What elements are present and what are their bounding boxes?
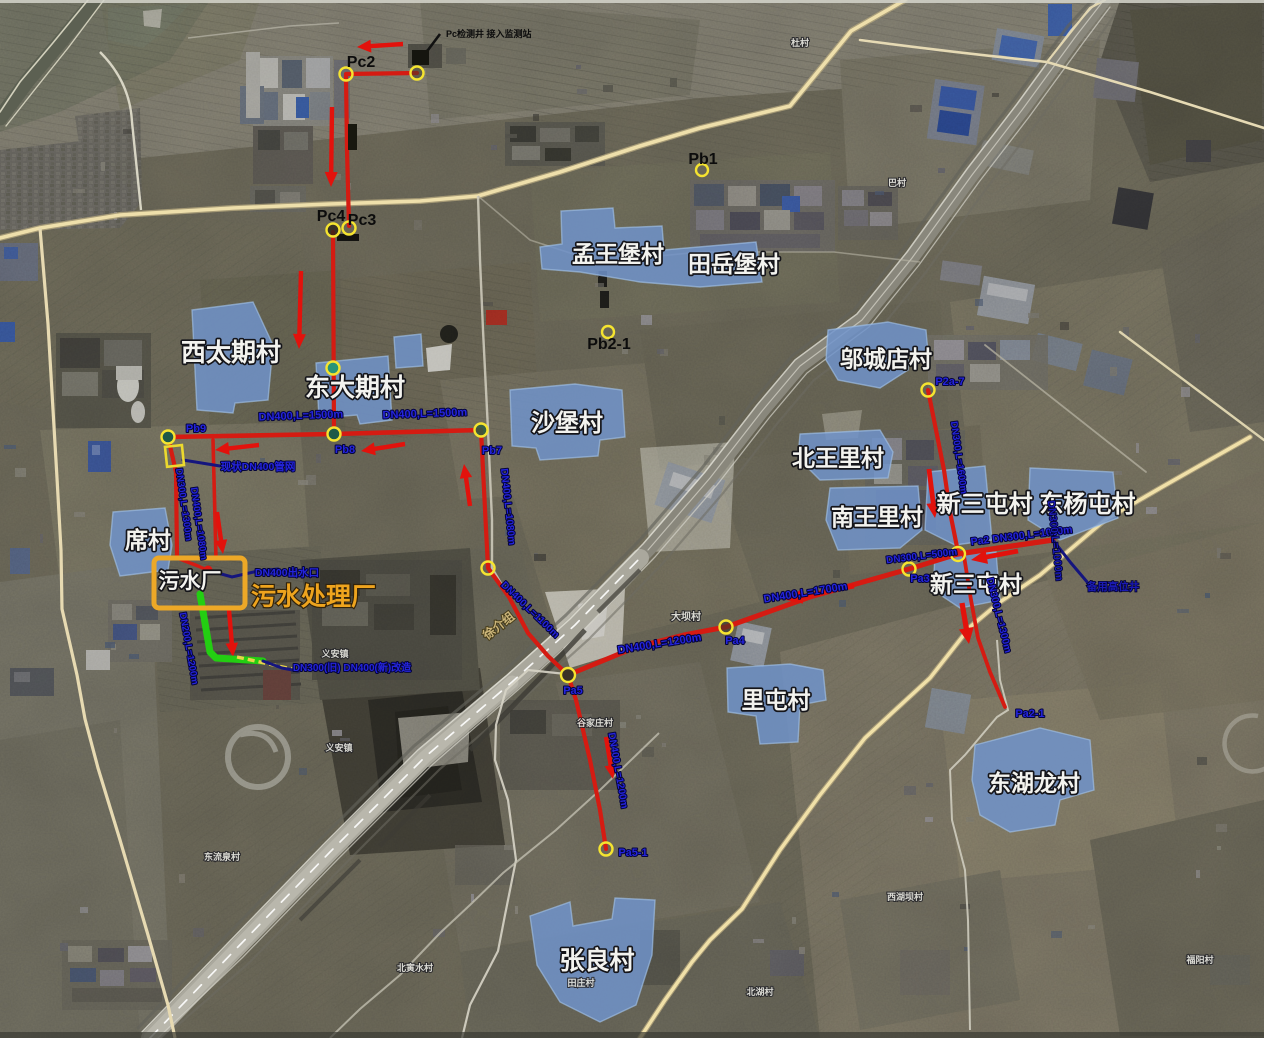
svg-text:Pb7: Pb7 (482, 445, 502, 457)
svg-text:备用高位井: 备用高位井 (1086, 580, 1140, 593)
svg-text:田庄村: 田庄村 (567, 977, 594, 988)
svg-text:西太期村: 西太期村 (181, 339, 281, 367)
svg-text:里屯村: 里屯村 (742, 687, 811, 713)
svg-text:福阳村: 福阳村 (1185, 954, 1213, 965)
svg-text:Pc检测井 接入监测站: Pc检测井 接入监测站 (446, 28, 532, 39)
svg-text:沙堡村: 沙堡村 (531, 410, 603, 437)
svg-text:DN400出水口: DN400出水口 (255, 566, 319, 579)
svg-text:孟王堡村: 孟王堡村 (572, 241, 664, 267)
svg-text:席村: 席村 (125, 527, 171, 553)
svg-text:Pc3: Pc3 (348, 212, 377, 229)
svg-text:Pa2-1: Pa2-1 (1015, 708, 1044, 720)
svg-text:东湖龙村: 东湖龙村 (988, 770, 1080, 796)
svg-text:新三屯村 东杨屯村: 新三屯村 东杨屯村 (937, 490, 1136, 518)
svg-text:Pb2-1: Pb2-1 (587, 336, 631, 353)
svg-text:Pc2: Pc2 (347, 54, 376, 71)
svg-text:北湖村: 北湖村 (746, 986, 773, 997)
svg-text:大坝村: 大坝村 (671, 610, 701, 623)
svg-text:污水处理厂: 污水处理厂 (251, 583, 376, 611)
svg-text:西湖坝村: 西湖坝村 (887, 891, 923, 902)
svg-text:Pa5-1: Pa5-1 (618, 847, 647, 859)
svg-text:DN300(旧) DN400(新)改造: DN300(旧) DN400(新)改造 (293, 661, 412, 674)
svg-text:北寅水村: 北寅水村 (397, 962, 433, 973)
svg-text:田岳堡村: 田岳堡村 (688, 251, 780, 277)
svg-text:张良村: 张良村 (559, 946, 634, 975)
svg-text:新三屯村: 新三屯村 (930, 571, 1022, 597)
svg-text:Pb1: Pb1 (688, 151, 717, 168)
svg-text:Pa4: Pa4 (725, 635, 745, 647)
svg-text:Pa5: Pa5 (563, 685, 583, 697)
svg-text:北王里村: 北王里村 (792, 445, 884, 471)
svg-text:Pc4: Pc4 (317, 208, 346, 225)
svg-text:Pb9: Pb9 (186, 423, 206, 435)
svg-text:P2a-7: P2a-7 (935, 376, 964, 388)
svg-text:南王里村: 南王里村 (831, 504, 923, 530)
svg-text:邬城店村: 邬城店村 (840, 346, 932, 372)
svg-text:义安镇: 义安镇 (324, 742, 352, 753)
svg-text:Pa3: Pa3 (910, 573, 930, 585)
svg-text:义安镇: 义安镇 (320, 648, 348, 659)
svg-text:东大期村: 东大期村 (305, 373, 405, 402)
svg-text:东流泉村: 东流泉村 (204, 851, 240, 862)
svg-text:Pb8: Pb8 (335, 444, 355, 456)
svg-text:巴村: 巴村 (888, 177, 906, 188)
svg-text:现状DN400管网: 现状DN400管网 (221, 460, 296, 473)
svg-text:杜村: 杜村 (791, 37, 809, 48)
svg-text:污水厂: 污水厂 (159, 570, 222, 593)
svg-text:谷家庄村: 谷家庄村 (577, 717, 613, 728)
